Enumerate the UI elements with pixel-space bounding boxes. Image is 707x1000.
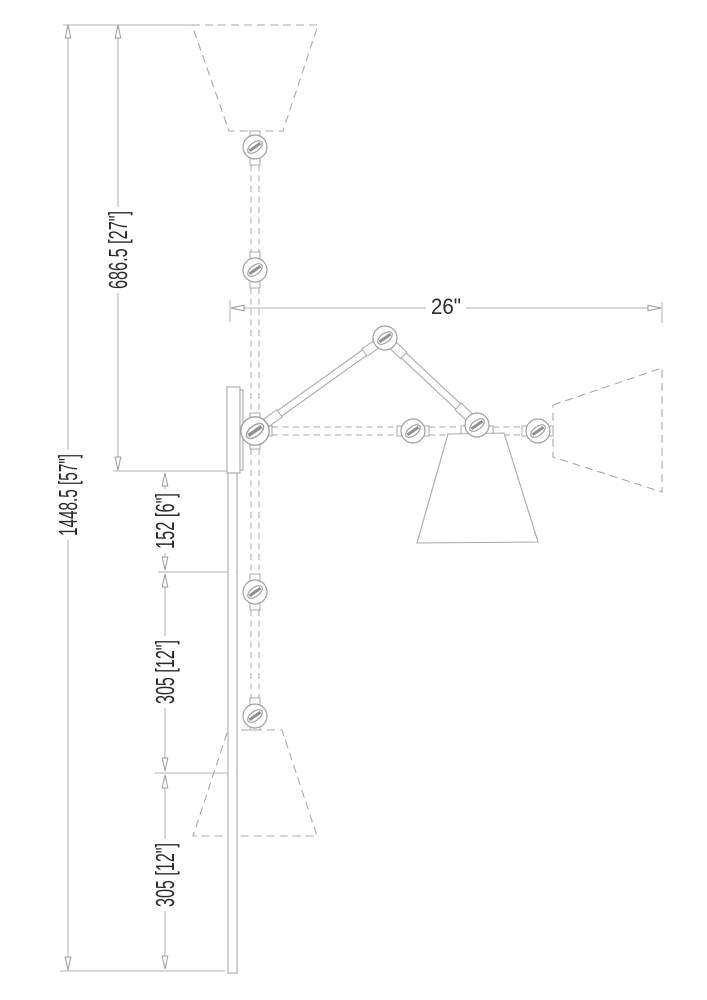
stem-joint-4 [243, 704, 267, 728]
swivel-joints [241, 135, 550, 728]
center-shade [417, 433, 538, 543]
wall-channel [228, 473, 237, 973]
stem-joint-2 [243, 258, 267, 282]
articulated-arm [253, 335, 479, 434]
elbow-joint [373, 326, 397, 350]
arm-joint-2 [465, 413, 489, 437]
lower-spacing-label: 305 [12"] [150, 843, 180, 907]
arm-joint-1 [401, 419, 425, 443]
arm-joint-3 [526, 419, 550, 443]
technical-drawing-sheet: 1448.5 [57"] 686.5 [27"] 152 [6"] 305 [1… [0, 0, 707, 1000]
overall-height-label: 1448.5 [57"] [53, 454, 83, 536]
side-shade-outline [553, 368, 662, 492]
upper-spacing-label: 305 [12"] [150, 640, 180, 704]
stem-joint-1 [243, 135, 267, 159]
bottom-shade-outline [193, 730, 317, 836]
arm-projection-label: 26" [431, 294, 461, 319]
top-shade-outline [192, 25, 318, 131]
wall-mount-joint [241, 417, 269, 445]
upper-height-label: 686.5 [27"] [103, 211, 133, 289]
plate-gap-label: 152 [6"] [150, 493, 180, 549]
fixture-dimension-drawing: 1448.5 [57"] 686.5 [27"] 152 [6"] 305 [1… [0, 0, 707, 1000]
stem-joint-3 [243, 580, 267, 604]
